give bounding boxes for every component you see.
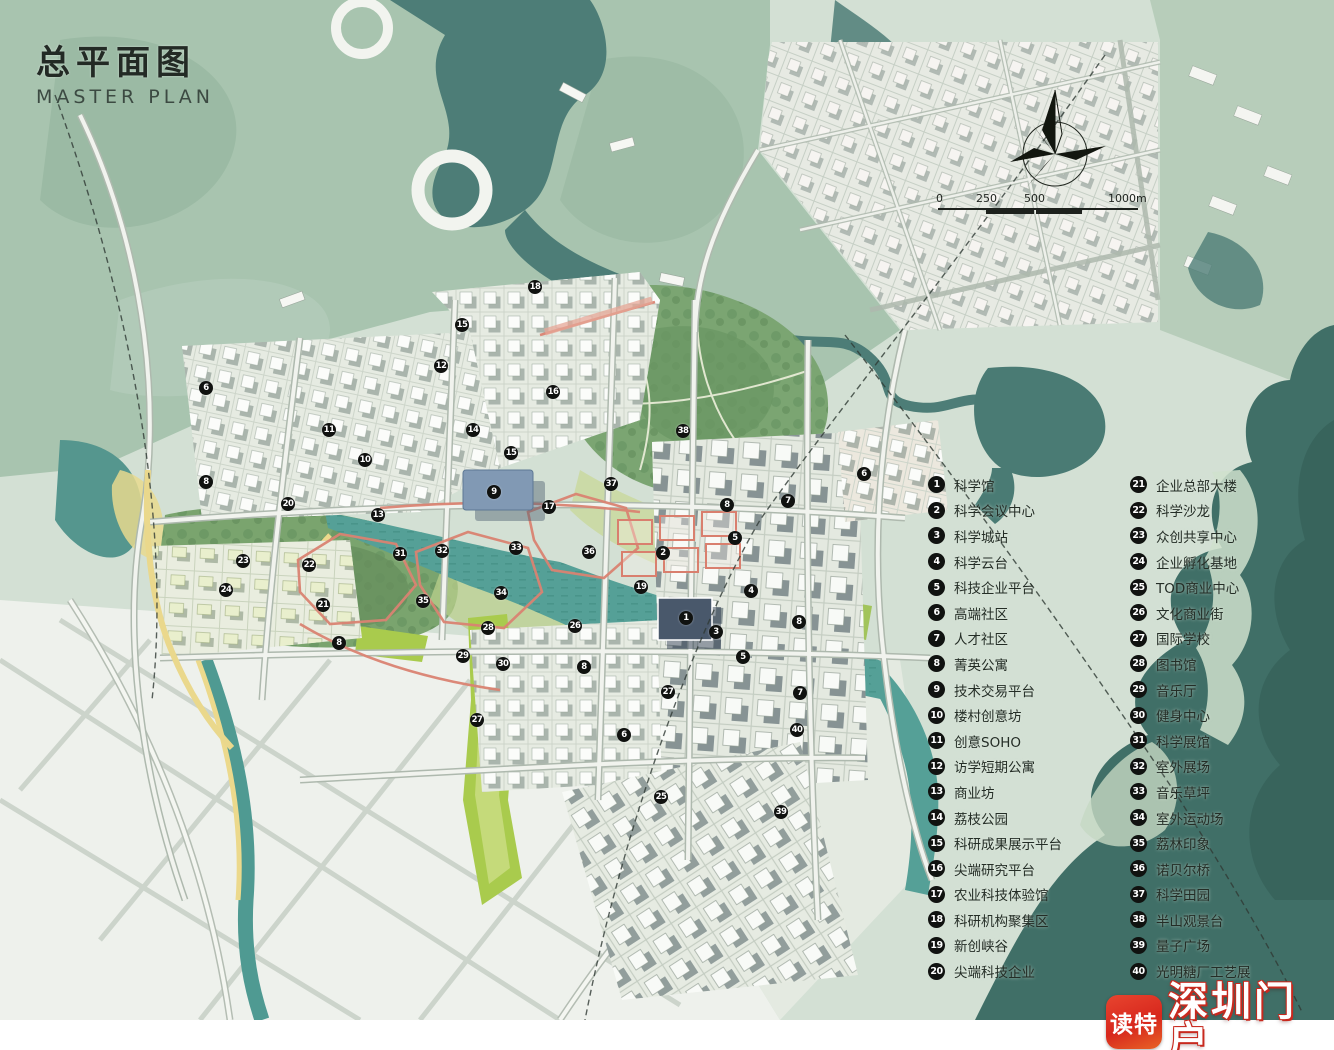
title-block: 总平面图 MASTER PLAN [36, 46, 214, 108]
legend-item-label: 科学沙龙 [1156, 500, 1210, 520]
legend-item-label: 科学馆 [954, 475, 995, 495]
legend-item-label: 音乐厅 [1156, 680, 1197, 700]
legend-item: 36 诺贝尔桥 [1130, 856, 1330, 882]
legend-item: 38 半山观景台 [1130, 907, 1330, 933]
legend-item: 21 企业总部大楼 [1130, 472, 1330, 498]
legend-number-badge: 36 [1130, 860, 1147, 877]
map-marker: 15 [455, 318, 469, 332]
legend-number-badge: 8 [928, 655, 945, 672]
map-marker: 21 [316, 598, 330, 612]
legend-item-label: 楼村创意坊 [954, 705, 1022, 725]
map-marker: 4 [744, 584, 758, 598]
legend-item-label: 国际学校 [1156, 628, 1210, 648]
legend-number-badge: 14 [928, 809, 945, 826]
legend-number-badge: 30 [1130, 707, 1147, 724]
legend-item-label: 高端社区 [954, 603, 1008, 623]
legend-item-label: 新创峡谷 [954, 935, 1008, 955]
map-marker: 5 [728, 531, 742, 545]
legend-item-label: 众创共享中心 [1156, 526, 1237, 546]
dute-app-icon: 读特 [1106, 995, 1162, 1049]
map-marker: 2 [656, 546, 670, 560]
legend-item: 6 高端社区 [928, 600, 1128, 626]
scale-tick: 0 [936, 192, 943, 205]
legend-item-label: 量子广场 [1156, 935, 1210, 955]
legend-item: 25 TOD商业中心 [1130, 574, 1330, 600]
legend-item: 1 科学馆 [928, 472, 1128, 498]
map-marker: 5 [736, 650, 750, 664]
legend-number-badge: 38 [1130, 911, 1147, 928]
watermark-site-name: 深圳门户 [1168, 982, 1334, 1050]
legend-item-label: 访学短期公寓 [954, 756, 1035, 776]
legend-number-badge: 4 [928, 553, 945, 570]
legend-item: 17 农业科技体验馆 [928, 882, 1128, 908]
legend-number-badge: 13 [928, 783, 945, 800]
legend-item: 29 音乐厅 [1130, 677, 1330, 703]
map-marker: 8 [792, 615, 806, 629]
map-marker: 6 [617, 728, 631, 742]
legend-item: 28 图书馆 [1130, 651, 1330, 677]
legend-number-badge: 9 [928, 681, 945, 698]
scale-track [936, 208, 1148, 216]
legend-item: 23 众创共享中心 [1130, 523, 1330, 549]
legend-number-badge: 11 [928, 732, 945, 749]
legend-number-badge: 23 [1130, 527, 1147, 544]
legend-number-badge: 7 [928, 630, 945, 647]
map-marker: 11 [322, 423, 336, 437]
legend-item: 18 科研机构聚集区 [928, 907, 1128, 933]
page-title-en: MASTER PLAN [36, 86, 214, 108]
legend-item-label: 企业孵化基地 [1156, 552, 1237, 572]
map-marker: 7 [781, 494, 795, 508]
map-marker: 33 [509, 541, 523, 555]
legend-item: 39 量子广场 [1130, 933, 1330, 959]
legend-item-label: 科学展馆 [1156, 731, 1210, 751]
legend-number-badge: 2 [928, 502, 945, 519]
legend-item: 9 技术交易平台 [928, 677, 1128, 703]
map-marker: 8 [720, 498, 734, 512]
map-marker: 32 [435, 544, 449, 558]
legend-item-label: 诺贝尔桥 [1156, 859, 1210, 879]
legend-item-label: 尖端研究平台 [954, 859, 1035, 879]
scale-tick: 500 [1024, 192, 1045, 205]
legend-number-badge: 25 [1130, 579, 1147, 596]
legend-item: 27 国际学校 [1130, 626, 1330, 652]
master-plan-image: 总平面图 MASTER PLAN 0 250 500 1000m 1 科学馆 [0, 0, 1334, 1050]
map-marker: 19 [634, 580, 648, 594]
legend-item-label: TOD商业中心 [1156, 577, 1239, 597]
legend-item: 16 尖端研究平台 [928, 856, 1128, 882]
legend-item: 5 科技企业平台 [928, 574, 1128, 600]
map-marker: 14 [466, 423, 480, 437]
legend-item-label: 室外运动场 [1156, 808, 1224, 828]
map-marker: 35 [416, 594, 430, 608]
legend-item-label: 科学城站 [954, 526, 1008, 546]
legend-item: 14 荔枝公园 [928, 805, 1128, 831]
legend-number-badge: 33 [1130, 783, 1147, 800]
legend-item-label: 图书馆 [1156, 654, 1197, 674]
map-marker: 6 [857, 467, 871, 481]
map-marker: 22 [302, 558, 316, 572]
legend-item: 22 科学沙龙 [1130, 498, 1330, 524]
legend-item: 7 人才社区 [928, 626, 1128, 652]
legend-item-label: 荔枝公园 [954, 808, 1008, 828]
map-marker: 8 [332, 636, 346, 650]
legend-item-label: 人才社区 [954, 628, 1008, 648]
legend-number-badge: 18 [928, 911, 945, 928]
legend-item: 35 荔林印象 [1130, 830, 1330, 856]
map-marker: 26 [568, 619, 582, 633]
legend-item: 31 科学展馆 [1130, 728, 1330, 754]
map-marker: 13 [371, 508, 385, 522]
legend-number-badge: 27 [1130, 630, 1147, 647]
map-marker: 36 [582, 545, 596, 559]
legend-item: 33 音乐草坪 [1130, 779, 1330, 805]
legend-item-label: 菁英公寓 [954, 654, 1008, 674]
legend-number-badge: 26 [1130, 604, 1147, 621]
legend-number-badge: 16 [928, 860, 945, 877]
legend-item: 10 楼村创意坊 [928, 702, 1128, 728]
map-marker: 8 [199, 475, 213, 489]
map-marker: 3 [709, 625, 723, 639]
legend-item-label: 音乐草坪 [1156, 782, 1210, 802]
legend-number-badge: 39 [1130, 937, 1147, 954]
legend-item-label: 健身中心 [1156, 705, 1210, 725]
map-marker: 20 [281, 497, 295, 511]
legend-item-label: 尖端科技企业 [954, 961, 1035, 981]
legend-number-badge: 3 [928, 527, 945, 544]
legend-number-badge: 37 [1130, 886, 1147, 903]
legend-number-badge: 40 [1130, 963, 1147, 980]
legend-number-badge: 24 [1130, 553, 1147, 570]
watermark: 读特 深圳门户 [1106, 982, 1334, 1050]
page-title-zh: 总平面图 [36, 46, 214, 80]
legend-item: 34 室外运动场 [1130, 805, 1330, 831]
legend-item: 20 尖端科技企业 [928, 958, 1128, 984]
legend-item-label: 科学会议中心 [954, 500, 1035, 520]
legend-item: 12 访学短期公寓 [928, 754, 1128, 780]
legend-item: 19 新创峡谷 [928, 933, 1128, 959]
map-marker: 7 [793, 686, 807, 700]
legend-item-label: 创意SOHO [954, 731, 1021, 751]
scale-bar: 0 250 500 1000m [936, 192, 1148, 216]
legend-item-label: 商业坊 [954, 782, 995, 802]
legend-column-2: 21 企业总部大楼 22 科学沙龙 23 众创共享中心 24 企业孵化基地 25… [1130, 472, 1330, 984]
map-marker: 12 [434, 359, 448, 373]
legend-item: 37 科学田园 [1130, 882, 1330, 908]
map-marker: 40 [790, 723, 804, 737]
legend-number-badge: 10 [928, 707, 945, 724]
legend-item: 11 创意SOHO [928, 728, 1128, 754]
legend-number-badge: 34 [1130, 809, 1147, 826]
legend-item-label: 科学云台 [954, 552, 1008, 572]
map-marker: 34 [494, 586, 508, 600]
legend-number-badge: 17 [928, 886, 945, 903]
legend-number-badge: 29 [1130, 681, 1147, 698]
dute-app-name: 读特 [1110, 1005, 1158, 1039]
scale-labels: 0 250 500 1000m [936, 192, 1148, 206]
legend-item: 3 科学城站 [928, 523, 1128, 549]
map-marker: 30 [496, 657, 510, 671]
legend-item-label: 企业总部大楼 [1156, 475, 1237, 495]
legend-item-label: 科技企业平台 [954, 577, 1035, 597]
map-marker: 28 [481, 621, 495, 635]
legend-item: 32 室外展场 [1130, 754, 1330, 780]
legend-number-badge: 35 [1130, 835, 1147, 852]
legend-item: 24 企业孵化基地 [1130, 549, 1330, 575]
map-marker: 27 [661, 685, 675, 699]
legend-item: 2 科学会议中心 [928, 498, 1128, 524]
map-marker: 16 [546, 385, 560, 399]
legend-number-badge: 5 [928, 579, 945, 596]
legend-item-label: 荔林印象 [1156, 833, 1210, 853]
legend-item: 15 科研成果展示平台 [928, 830, 1128, 856]
legend-number-badge: 6 [928, 604, 945, 621]
legend-item-label: 农业科技体验馆 [954, 884, 1049, 904]
legend-item: 8 菁英公寓 [928, 651, 1128, 677]
legend-item-label: 科研机构聚集区 [954, 910, 1049, 930]
legend-item: 30 健身中心 [1130, 702, 1330, 728]
map-marker: 8 [577, 660, 591, 674]
legend-number-badge: 22 [1130, 502, 1147, 519]
legend-number-badge: 19 [928, 937, 945, 954]
scale-tick: 250 [976, 192, 997, 205]
map-marker: 6 [199, 381, 213, 395]
map-marker: 25 [654, 790, 668, 804]
map-marker: 39 [774, 805, 788, 819]
legend-number-badge: 32 [1130, 758, 1147, 775]
legend-number-badge: 31 [1130, 732, 1147, 749]
legend-item-label: 技术交易平台 [954, 680, 1035, 700]
map-marker: 17 [542, 500, 556, 514]
legend-item: 26 文化商业街 [1130, 600, 1330, 626]
map-marker: 23 [236, 554, 250, 568]
map-marker: 38 [676, 424, 690, 438]
legend-item-label: 室外展场 [1156, 756, 1210, 776]
legend-number-badge: 20 [928, 963, 945, 980]
legend-item-label: 半山观景台 [1156, 910, 1224, 930]
map-marker: 9 [487, 485, 501, 499]
map-marker: 37 [604, 477, 618, 491]
north-arrow-icon [1000, 88, 1110, 208]
legend-number-badge: 12 [928, 758, 945, 775]
map-marker: 24 [219, 583, 233, 597]
legend-column-1: 1 科学馆 2 科学会议中心 3 科学城站 4 科学云台 5 科技企业平台 6 … [928, 472, 1128, 984]
legend-number-badge: 21 [1130, 476, 1147, 493]
map-marker: 29 [456, 649, 470, 663]
legend-item: 13 商业坊 [928, 779, 1128, 805]
legend-item: 4 科学云台 [928, 549, 1128, 575]
legend-number-badge: 15 [928, 835, 945, 852]
legend-number-badge: 28 [1130, 655, 1147, 672]
map-marker: 31 [393, 547, 407, 561]
legend-item-label: 科研成果展示平台 [954, 833, 1062, 853]
map-marker: 15 [504, 446, 518, 460]
map-marker: 18 [528, 280, 542, 294]
map-marker: 1 [679, 611, 693, 625]
scale-tick: 1000m [1108, 192, 1147, 205]
legend-item-label: 文化商业街 [1156, 603, 1224, 623]
legend-number-badge: 1 [928, 476, 945, 493]
map-marker: 10 [358, 453, 372, 467]
legend-item-label: 科学田园 [1156, 884, 1210, 904]
map-marker: 27 [470, 713, 484, 727]
